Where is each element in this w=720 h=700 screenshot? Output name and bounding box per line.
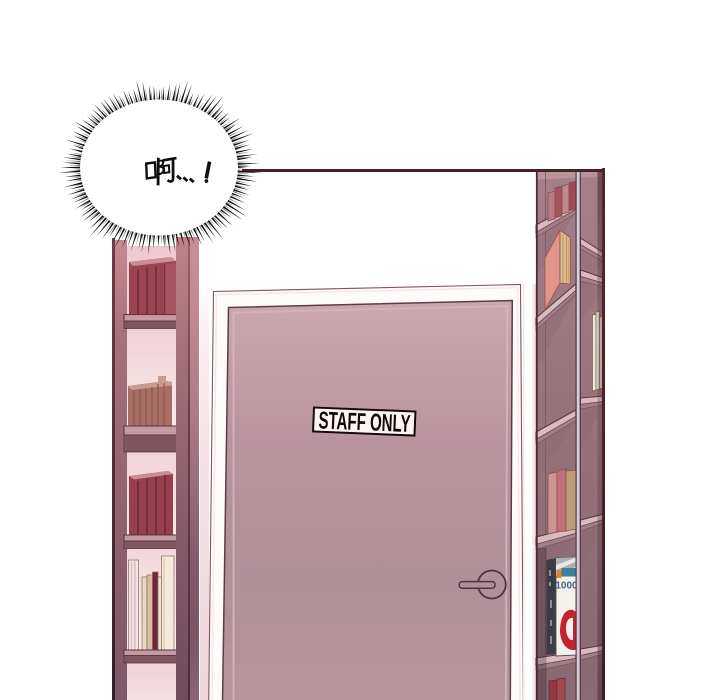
svg-text:STAFF ONLY: STAFF ONLY [318,407,411,438]
svg-text:1000: 1000 [555,581,578,592]
